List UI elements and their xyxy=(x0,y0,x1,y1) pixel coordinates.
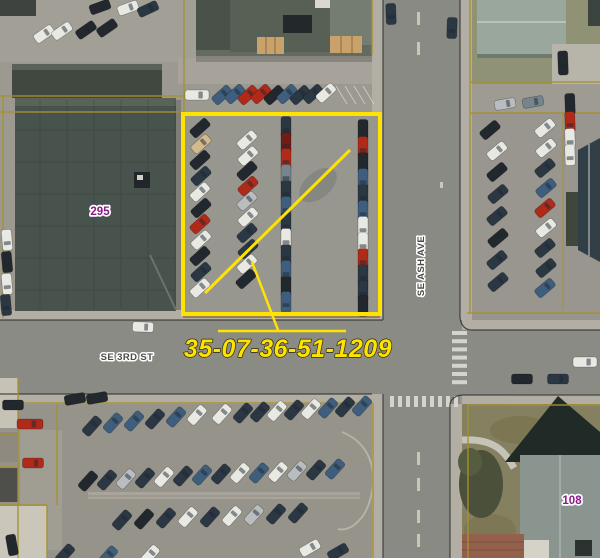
car xyxy=(512,374,533,384)
car xyxy=(558,51,569,75)
car-windshield xyxy=(14,402,18,409)
car xyxy=(185,90,209,100)
parcel-id-label: 35-07-36-51-1209 xyxy=(184,335,392,363)
car xyxy=(548,374,569,384)
car-windshield xyxy=(360,212,367,216)
car xyxy=(17,419,43,429)
car-windshield xyxy=(283,303,290,307)
car-windshield xyxy=(34,460,38,467)
car-windshield xyxy=(567,105,574,109)
car-windshield xyxy=(567,123,574,127)
car-windshield xyxy=(283,240,290,244)
car xyxy=(1,229,13,251)
car-windshield xyxy=(567,156,574,160)
car-windshield xyxy=(360,164,367,168)
car-windshield xyxy=(283,224,290,228)
crosswalk-south xyxy=(390,396,458,407)
car xyxy=(1,273,13,295)
car xyxy=(565,144,576,165)
car xyxy=(447,17,458,38)
car-windshield xyxy=(586,359,590,366)
car xyxy=(23,458,44,468)
car xyxy=(3,400,24,410)
car-windshield xyxy=(523,376,527,383)
car xyxy=(573,357,597,367)
brick-patio xyxy=(462,534,524,558)
car-windshield xyxy=(32,421,37,428)
car xyxy=(281,292,291,313)
car-windshield xyxy=(360,180,367,184)
car-windshield xyxy=(4,241,11,245)
car-windshield xyxy=(3,306,10,310)
car-windshield xyxy=(144,324,148,331)
gis-map-view[interactable]: 35-07-36-51-1209 SE 3RD ST SE ASH AVE 29… xyxy=(0,0,600,558)
car-windshield xyxy=(360,260,367,264)
car-windshield xyxy=(283,192,290,196)
car-windshield xyxy=(283,128,290,132)
car-windshield xyxy=(283,160,290,164)
car xyxy=(386,3,397,24)
car-windshield xyxy=(360,276,367,280)
car xyxy=(1,251,13,273)
car-windshield xyxy=(4,263,11,267)
car-windshield xyxy=(559,376,563,383)
car-windshield xyxy=(360,244,367,248)
car-windshield xyxy=(360,131,367,135)
car-windshield xyxy=(360,196,367,200)
street-label-ash-ave: SE ASH AVE xyxy=(416,236,427,296)
car-windshield xyxy=(283,176,290,180)
parcel-number-295: 295 xyxy=(90,206,110,218)
car-windshield xyxy=(360,148,367,152)
car-windshield xyxy=(560,64,567,69)
car-windshield xyxy=(448,29,455,33)
car xyxy=(132,322,153,333)
car-windshield xyxy=(360,228,367,232)
car-windshield xyxy=(567,140,574,144)
car xyxy=(0,294,12,316)
car-windshield xyxy=(4,285,11,289)
car-windshield xyxy=(283,144,290,148)
car-windshield xyxy=(360,307,367,311)
car-windshield xyxy=(283,272,290,276)
car-windshield xyxy=(198,92,202,99)
street-label-3rd-st: SE 3RD ST xyxy=(101,352,154,363)
car-windshield xyxy=(388,15,395,19)
car-windshield xyxy=(283,256,290,260)
aerial-map-canvas[interactable]: 35-07-36-51-1209 SE 3RD ST SE ASH AVE 29… xyxy=(0,0,600,558)
parcel-number-108: 108 xyxy=(562,495,582,507)
